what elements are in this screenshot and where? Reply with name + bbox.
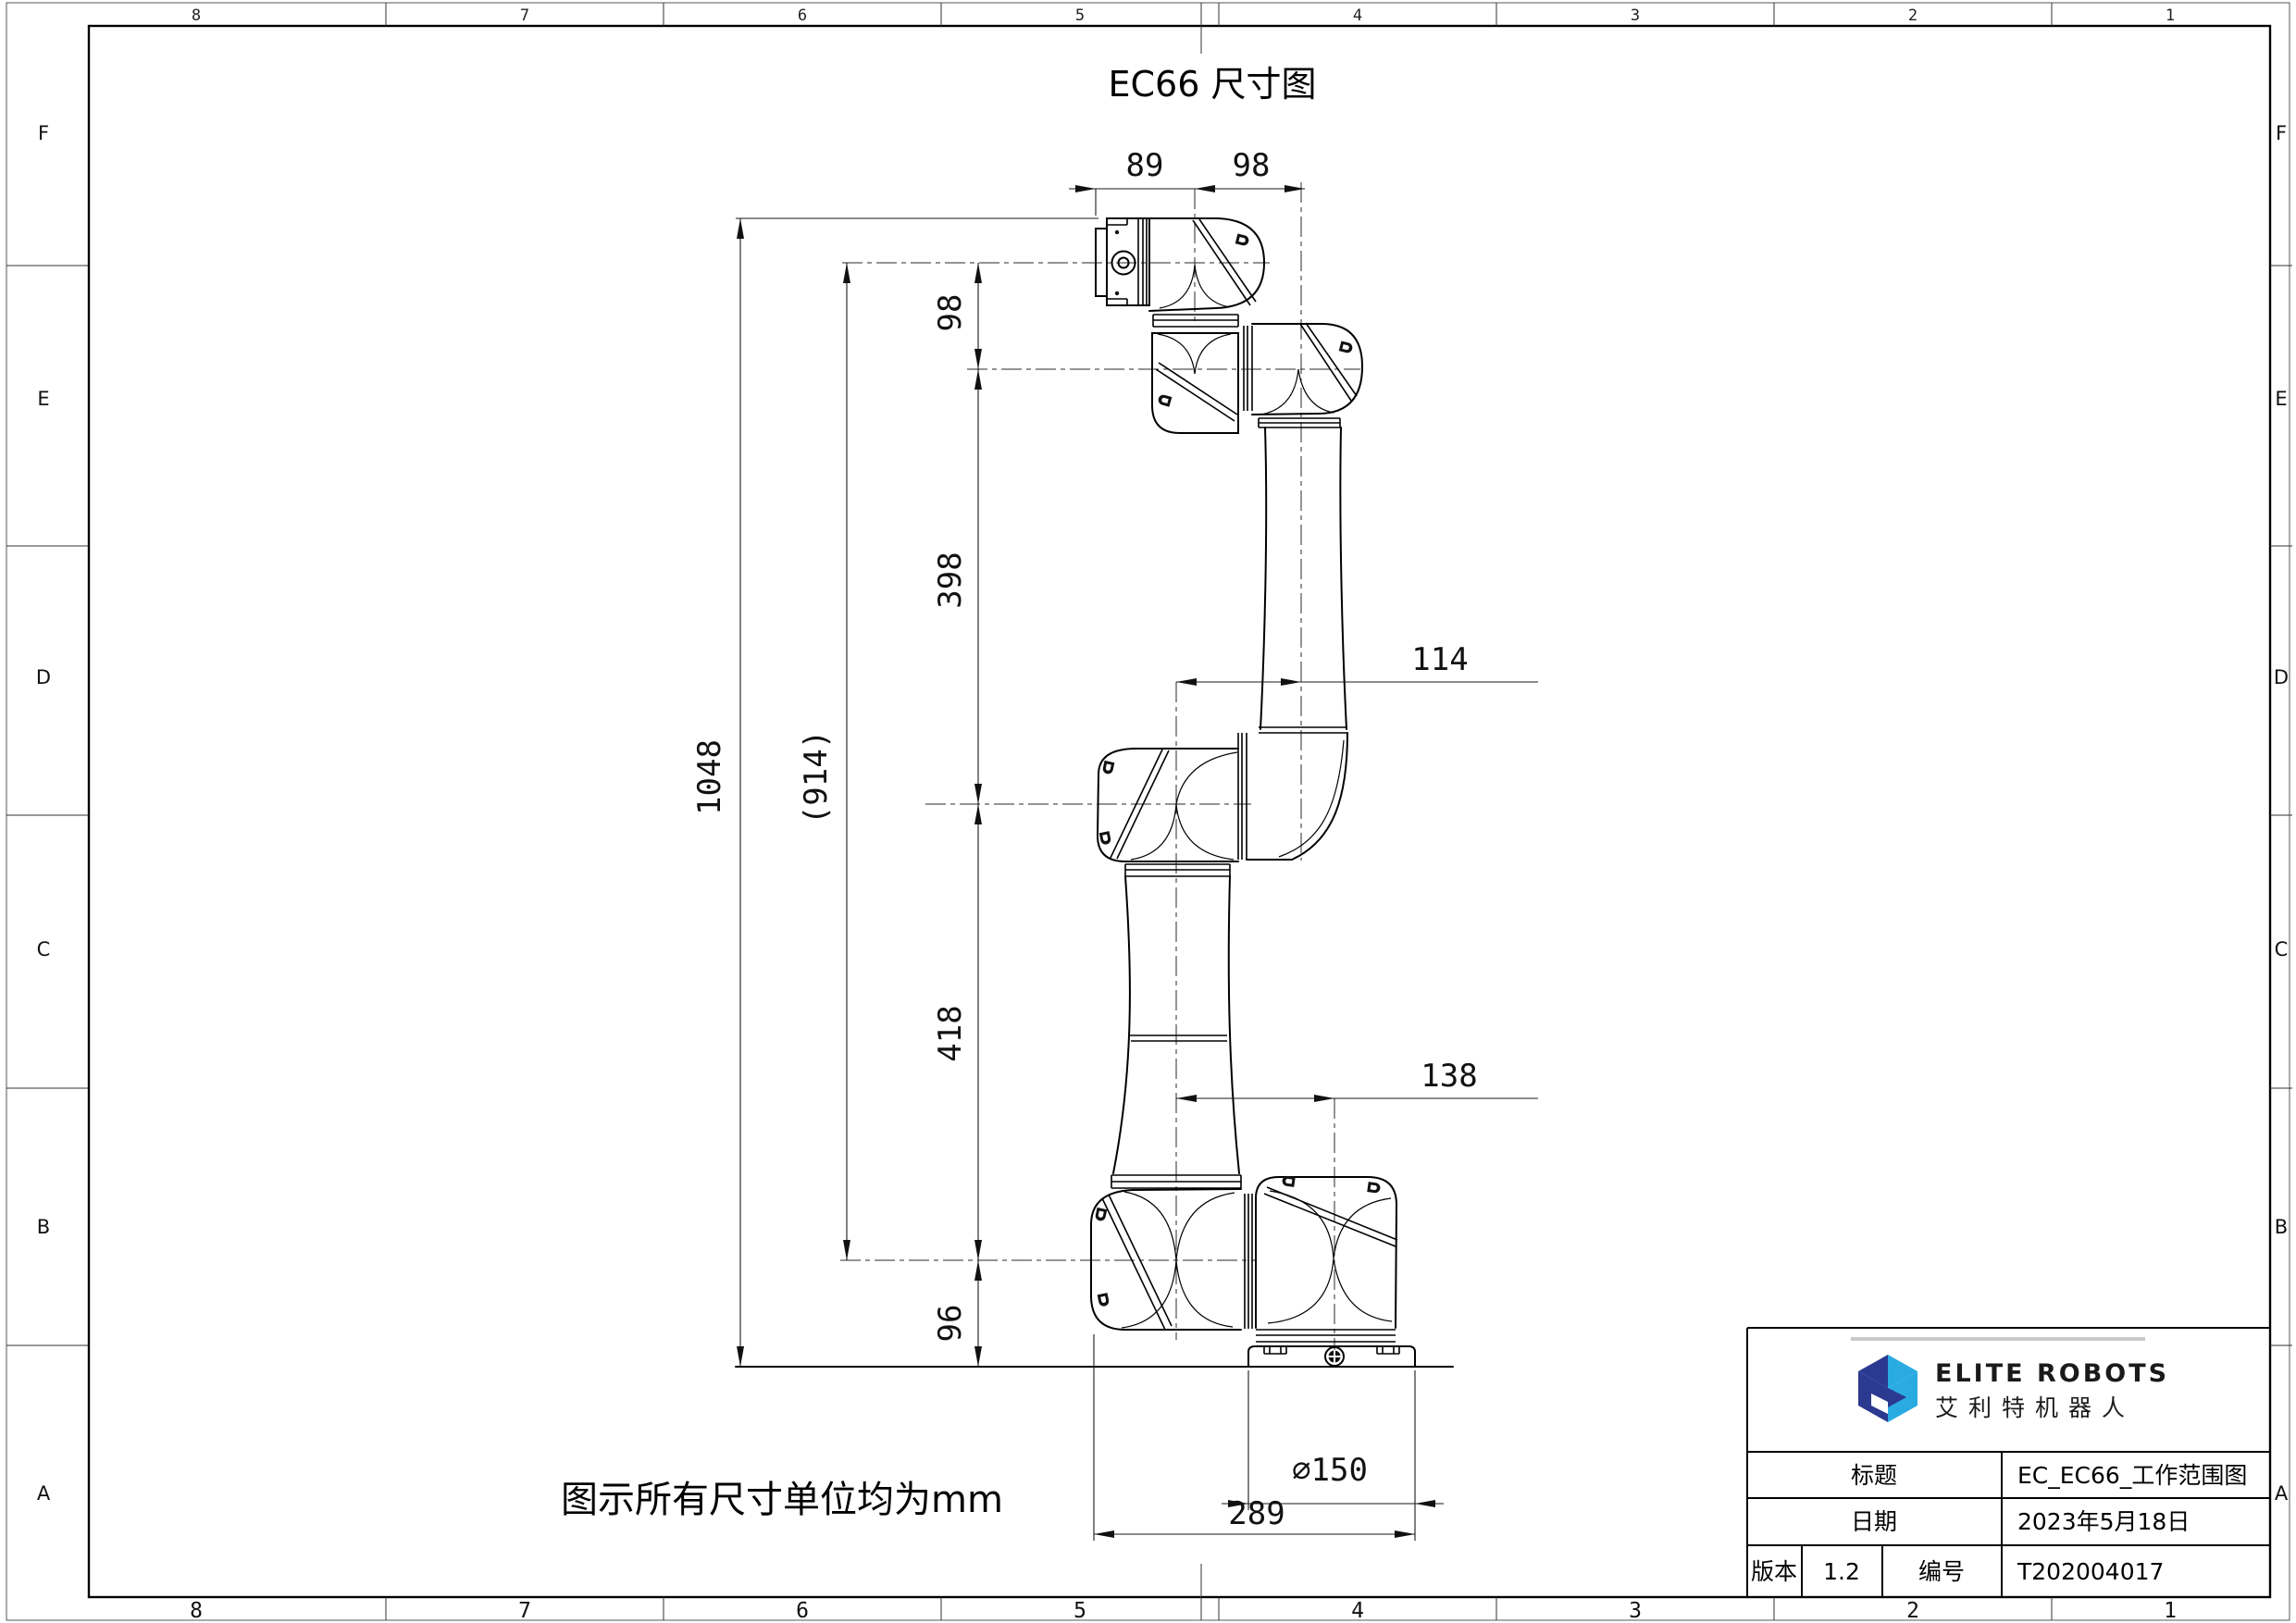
zone-letter: B bbox=[37, 1216, 50, 1238]
field-number-value: T202004017 bbox=[2017, 1558, 2164, 1585]
zone-letter: C bbox=[37, 938, 51, 960]
logo-cube-icon bbox=[1858, 1355, 1917, 1422]
field-date-value: 2023年5月18日 bbox=[2017, 1508, 2190, 1535]
wrist2-lower-block bbox=[1152, 333, 1238, 433]
connector-port-icon bbox=[1102, 761, 1115, 774]
brand-name-en: ELITE ROBOTS bbox=[1935, 1359, 2169, 1388]
dim-89: 89 bbox=[1126, 147, 1164, 184]
zone-ruler-left bbox=[6, 266, 89, 1345]
zone-numbers-bottom: 8 7 6 5 4 3 2 1 bbox=[190, 1599, 2177, 1623]
field-date-label: 日期 bbox=[1851, 1508, 1897, 1535]
wrist1-stripe bbox=[1300, 323, 1357, 401]
drawing-title: EC66 尺寸图 bbox=[1109, 64, 1317, 105]
dim-289: 289 bbox=[1228, 1495, 1285, 1532]
field-number-label: 编号 bbox=[1918, 1558, 1965, 1585]
connector-port-icon bbox=[1339, 341, 1354, 353]
dim-98-top: 98 bbox=[1233, 147, 1271, 184]
zone-number: 3 bbox=[1631, 6, 1640, 25]
dim-1048: 1048 bbox=[691, 739, 728, 815]
wrist-block-stripe bbox=[1156, 363, 1237, 421]
connector-port-icon bbox=[1367, 1182, 1381, 1194]
field-version-label: 版本 bbox=[1751, 1558, 1797, 1585]
zone-number: 1 bbox=[2164, 1599, 2177, 1623]
dim-150: ⌀150 bbox=[1292, 1452, 1368, 1489]
zone-number: 7 bbox=[520, 6, 529, 25]
zone-number: 2 bbox=[1908, 6, 1917, 25]
dimension-914: (914) bbox=[798, 263, 850, 1260]
zone-letter: D bbox=[36, 666, 51, 688]
centerlines bbox=[840, 182, 1360, 1362]
flange-bolt-dot bbox=[1115, 230, 1119, 234]
dimension-chain-left: 98 398 418 96 bbox=[932, 263, 982, 1367]
zone-ruler-right bbox=[2270, 266, 2292, 1345]
field-title-value: EC_EC66_工作范围图 bbox=[2017, 1462, 2247, 1489]
zone-number: 5 bbox=[1074, 1599, 1086, 1623]
dimensions: 89 98 98 398 418 96 1048 bbox=[691, 147, 1538, 1541]
zone-number: 8 bbox=[190, 1599, 203, 1623]
base-stripe bbox=[1264, 1187, 1397, 1246]
zone-letters-left: F E D C B A bbox=[36, 122, 51, 1505]
upper-arm-link bbox=[1238, 418, 1347, 860]
zone-number: 4 bbox=[1351, 1599, 1364, 1623]
elbow-joint bbox=[1098, 749, 1238, 861]
zone-number: 5 bbox=[1075, 6, 1085, 25]
dim-418: 418 bbox=[932, 1005, 969, 1061]
connector-port-icon bbox=[1095, 1208, 1108, 1221]
engineering-drawing-canvas: 8 7 6 5 4 3 2 1 8 7 6 5 4 3 2 1 F E D C … bbox=[0, 0, 2296, 1623]
dimension-114: 114 bbox=[1176, 641, 1538, 686]
units-note: 图示所有尺寸单位均为mm bbox=[561, 1479, 1003, 1521]
zone-letter: C bbox=[2275, 938, 2289, 960]
zone-number: 8 bbox=[192, 6, 201, 25]
zone-letter: E bbox=[2275, 388, 2287, 410]
elbow-lower-ring bbox=[1125, 864, 1230, 876]
zone-number: 1 bbox=[2166, 6, 2175, 25]
connector-port-icon bbox=[1235, 233, 1250, 246]
dim-398: 398 bbox=[932, 551, 969, 608]
wrist2-neck-rings bbox=[1153, 315, 1238, 327]
field-title-label: 标题 bbox=[1851, 1462, 1897, 1489]
dim-98-left: 98 bbox=[932, 294, 969, 332]
zone-number: 4 bbox=[1353, 6, 1362, 25]
zone-number: 6 bbox=[798, 6, 807, 25]
dim-138: 138 bbox=[1421, 1058, 1477, 1095]
zone-letter: B bbox=[2275, 1216, 2288, 1238]
dimension-289: 289 bbox=[1094, 1334, 1415, 1541]
connector-port-icon bbox=[1157, 393, 1172, 406]
dimension-1048: 1048 bbox=[691, 218, 1098, 1367]
dim-914: (914) bbox=[798, 730, 835, 824]
connector-port-icon bbox=[1099, 831, 1112, 845]
elite-logo: ELITE ROBOTS 艾利特机器人 bbox=[1851, 1339, 2169, 1422]
tool-flange bbox=[1096, 218, 1149, 305]
field-version-value: 1.2 bbox=[1823, 1558, 1860, 1585]
zone-number: 3 bbox=[1629, 1599, 1642, 1623]
zone-ruler-top bbox=[386, 3, 2052, 54]
zone-number: 6 bbox=[796, 1599, 809, 1623]
dim-96: 96 bbox=[932, 1305, 969, 1343]
zone-letter: D bbox=[2274, 666, 2289, 688]
zone-number: 7 bbox=[518, 1599, 531, 1623]
zone-number: 2 bbox=[1906, 1599, 1919, 1623]
zone-letter: E bbox=[37, 388, 49, 410]
robot-side-view bbox=[736, 182, 1453, 1367]
shoulder-joint bbox=[1091, 1189, 1252, 1330]
dim-114: 114 bbox=[1411, 641, 1468, 678]
title-block: ELITE ROBOTS 艾利特机器人 标题 EC_EC66_工作范围图 日期 … bbox=[1747, 1328, 2270, 1597]
base-joint bbox=[1256, 1175, 1397, 1342]
flange-bolt-dot bbox=[1115, 291, 1119, 295]
zone-letter: A bbox=[37, 1482, 51, 1505]
zone-letter: A bbox=[2275, 1482, 2289, 1505]
zone-letter: F bbox=[38, 122, 49, 144]
zone-numbers-top: 8 7 6 5 4 3 2 1 bbox=[192, 6, 2175, 25]
connector-port-icon bbox=[1098, 1293, 1111, 1307]
shoulder-stripe bbox=[1102, 1195, 1172, 1330]
zone-letter: F bbox=[2276, 122, 2287, 144]
zone-letters-right: F E D C B A bbox=[2274, 122, 2289, 1505]
wrist2-joint bbox=[1149, 218, 1264, 311]
dimension-89-98-top: 89 98 bbox=[1069, 147, 1305, 216]
brand-name-cn: 艾利特机器人 bbox=[1935, 1394, 2135, 1421]
drawing-sheet-page: 8 7 6 5 4 3 2 1 8 7 6 5 4 3 2 1 F E D C … bbox=[0, 0, 2296, 1623]
